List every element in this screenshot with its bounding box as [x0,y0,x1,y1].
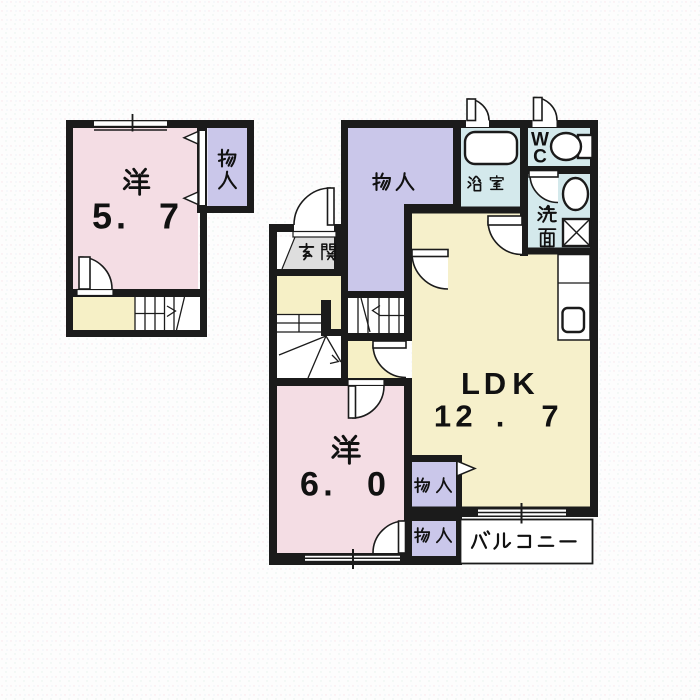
svg-text:K: K [512,366,535,401]
svg-text:L: L [461,366,480,401]
svg-text:.: . [496,399,505,434]
svg-text:2: 2 [455,399,472,434]
svg-text:0: 0 [367,466,386,504]
svg-text:7: 7 [159,196,179,237]
svg-text:6: 6 [300,466,319,504]
svg-text:.: . [323,466,332,504]
svg-text:5: 5 [92,196,112,237]
svg-text:D: D [484,366,506,401]
svg-text:7: 7 [541,399,558,434]
svg-text:.: . [116,196,126,237]
svg-text:1: 1 [434,399,451,434]
svg-text:C: C [533,147,547,168]
